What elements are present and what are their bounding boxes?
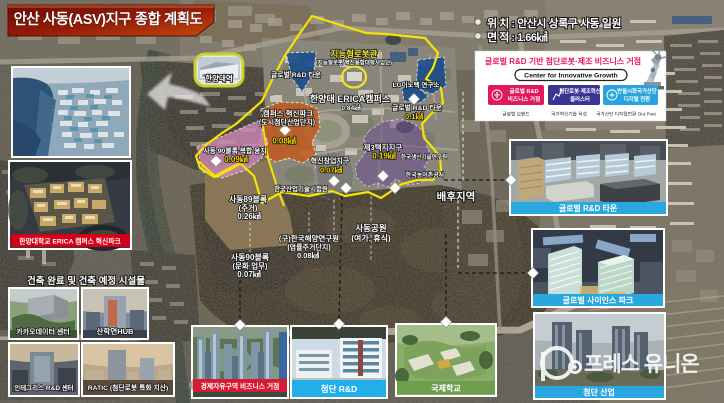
svg-text:(주거): (주거)	[239, 203, 258, 213]
svg-text:0.26㎢: 0.26㎢	[237, 211, 261, 221]
svg-text:면 적 : 1.66㎢: 면 적 : 1.66㎢	[487, 30, 547, 44]
svg-text:사동 90블록 복합 용지: 사동 90블록 복합 용지	[203, 146, 266, 155]
svg-text:국가산단 디지털전환 Out Post: 국가산단 디지털전환 Out Post	[596, 111, 656, 118]
svg-text:안산 사동(ASV)지구 종합 계획도: 안산 사동(ASV)지구 종합 계획도	[14, 10, 203, 28]
svg-text:0.07㎢: 0.07㎢	[320, 165, 343, 175]
svg-text:경제자유구역 비즈니스 거점: 경제자유구역 비즈니스 거점	[201, 382, 280, 391]
svg-text:Center for Innovative Growth: Center for Innovative Growth	[524, 73, 618, 80]
svg-text:사동공원: 사동공원	[355, 223, 386, 233]
svg-text:(구)한국해양연구원: (구)한국해양연구원	[279, 233, 339, 243]
svg-text:첨단 R&D: 첨단 R&D	[321, 384, 357, 394]
svg-text:배후지역: 배후지역	[437, 190, 476, 203]
svg-text:인테그리스 R&D 센터: 인테그리스 R&D 센터	[14, 383, 74, 392]
svg-text:LG이노텍 연구소: LG이노텍 연구소	[393, 80, 440, 89]
svg-text:(지능형로봇 혁신융합대학사업단): (지능형로봇 혁신융합대학사업단)	[316, 59, 392, 67]
svg-text:글로벌 R&D 타운: 글로벌 R&D 타운	[392, 103, 443, 112]
svg-text:(문화·업무): (문화·업무)	[232, 261, 268, 271]
svg-text:0.08㎢: 0.08㎢	[297, 250, 320, 260]
svg-text:(여가, 휴식): (여가, 휴식)	[351, 233, 391, 243]
svg-text:카카오데이터 센터: 카카오데이터 센터	[16, 327, 69, 336]
svg-text:디지털 전환: 디지털 전환	[624, 95, 650, 103]
svg-text:글로벌 R&D: 글로벌 R&D	[509, 87, 538, 95]
svg-text:0.19㎢: 0.19㎢	[372, 151, 396, 161]
svg-text:첨단 산업: 첨단 산업	[583, 387, 615, 397]
svg-text:국제학교: 국제학교	[431, 383, 461, 393]
svg-text:사동89블록: 사동89블록	[229, 194, 268, 204]
svg-text:0.09㎢: 0.09㎢	[224, 154, 248, 164]
svg-text:한국산업기술시험원: 한국산업기술시험원	[274, 184, 328, 193]
svg-text:한국농어촌공사: 한국농어촌공사	[406, 171, 445, 179]
svg-text:한국생산기술연구원: 한국생산기술연구원	[401, 153, 447, 161]
svg-text:글로벌 R&D 타운: 글로벌 R&D 타운	[559, 203, 618, 213]
svg-text:RATIC (첨단로봇 특화 지산): RATIC (첨단로봇 특화 지산)	[88, 383, 168, 392]
svg-text:혁신창업지구: 혁신창업지구	[311, 156, 350, 165]
svg-text:한양대역: 한양대역	[205, 73, 233, 83]
svg-text:지능형로봇관: 지능형로봇관	[331, 49, 378, 59]
svg-text:위 치 : 안산시 상록구 사동 일원: 위 치 : 안산시 상록구 사동 일원	[487, 16, 621, 30]
svg-text:반월시화국가산단: 반월시화국가산단	[617, 87, 657, 95]
svg-text:글로벌 브랜드: 글로벌 브랜드	[502, 111, 530, 117]
svg-text:첨단로봇·제조혁신: 첨단로봇·제조혁신	[559, 87, 601, 95]
svg-text:사동90블록: 사동90블록	[231, 252, 270, 262]
svg-text:프레스 유니온: 프레스 유니온	[584, 353, 699, 376]
svg-text:비즈니스 거점: 비즈니스 거점	[508, 95, 540, 103]
svg-text:(도시첨단산업단지): (도시첨단산업단지)	[259, 118, 315, 127]
svg-text:캠퍼스 혁신파크: 캠퍼스 혁신파크	[263, 108, 313, 118]
svg-text:0.07㎢: 0.07㎢	[237, 269, 261, 279]
svg-text:국가혁신기술 육성: 국가혁신기술 육성	[551, 111, 587, 118]
svg-text:한양대 ERICA캠퍼스: 한양대 ERICA캠퍼스	[310, 93, 391, 104]
svg-text:0.84㎢: 0.84㎢	[341, 103, 361, 112]
svg-text:제3택지지구: 제3택지지구	[364, 142, 403, 152]
svg-text:건축 완료 및 건축 예정 시설물: 건축 완료 및 건축 예정 시설물	[27, 275, 145, 287]
svg-text:산학연HUB: 산학연HUB	[97, 326, 135, 336]
svg-text:0.08㎢: 0.08㎢	[272, 136, 296, 146]
svg-text:글로벌 R&D 타운: 글로벌 R&D 타운	[271, 70, 322, 79]
svg-text:글로벌 R&D 기반 첨단로봇·제조 비즈니스 거점: 글로벌 R&D 기반 첨단로봇·제조 비즈니스 거점	[485, 56, 641, 66]
svg-text:한양대학교 ERICA 캠퍼스 혁신파크: 한양대학교 ERICA 캠퍼스 혁신파크	[19, 237, 121, 246]
svg-text:글로벌 사이언스 파크: 글로벌 사이언스 파크	[563, 295, 634, 305]
svg-text:0.1㎢: 0.1㎢	[405, 111, 423, 121]
svg-text:클러스터: 클러스터	[570, 95, 590, 103]
